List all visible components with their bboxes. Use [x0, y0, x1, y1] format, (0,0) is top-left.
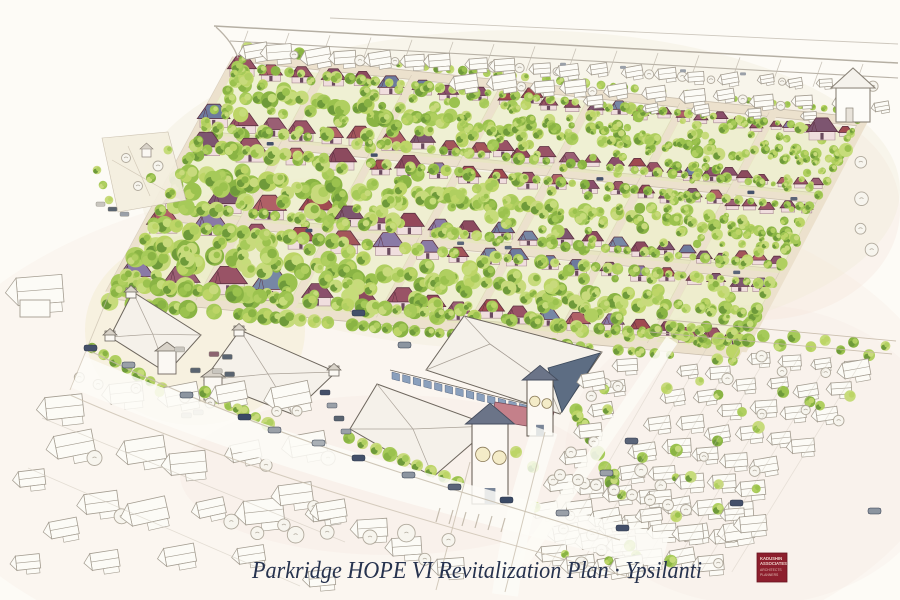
svg-text:ARCHITECTS: ARCHITECTS [760, 568, 782, 572]
svg-text:ASSOCIATES: ASSOCIATES [760, 561, 787, 566]
svg-text:PLANNERS: PLANNERS [760, 573, 779, 577]
svg-text:Parkridge HOPE VI Revitalizati: Parkridge HOPE VI Revitalization Plan · … [251, 558, 702, 584]
